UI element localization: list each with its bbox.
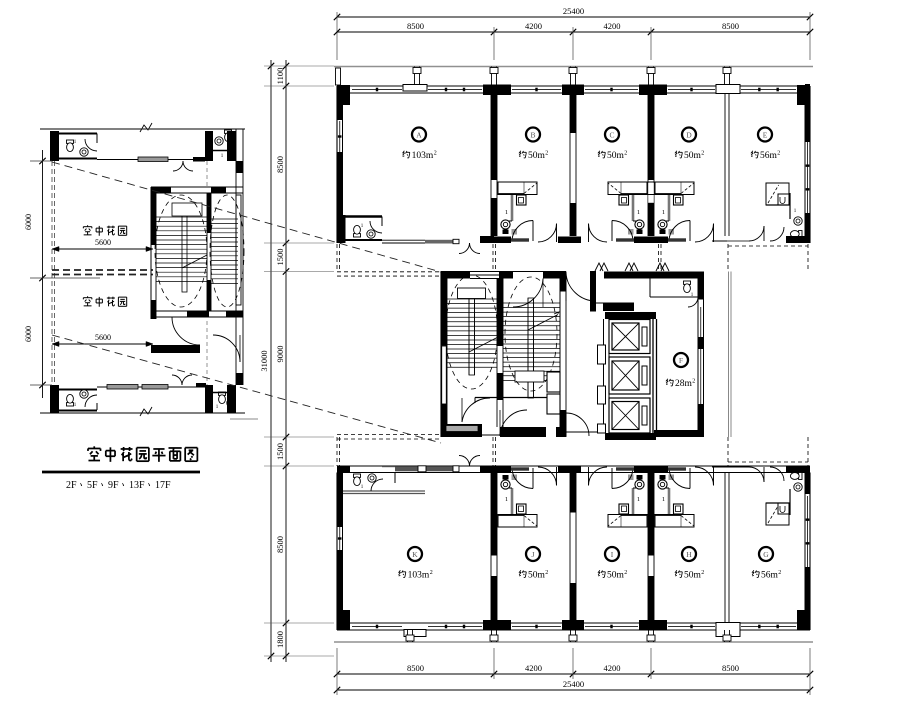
svg-text:2: 2 <box>701 570 704 576</box>
svg-text:50m: 50m <box>684 151 702 161</box>
svg-text:4200: 4200 <box>525 21 542 31</box>
svg-text:5600: 5600 <box>95 238 111 247</box>
svg-text:31000: 31000 <box>259 350 269 371</box>
svg-text:2: 2 <box>624 151 627 157</box>
svg-text:1: 1 <box>637 209 640 216</box>
svg-text:6000: 6000 <box>24 326 33 342</box>
svg-text:8500: 8500 <box>275 156 285 173</box>
svg-text:2: 2 <box>624 570 627 576</box>
svg-text:8500: 8500 <box>275 536 285 553</box>
svg-text:28m: 28m <box>675 379 693 389</box>
svg-text:2: 2 <box>701 151 704 157</box>
svg-text:8500: 8500 <box>722 663 739 673</box>
svg-text:1: 1 <box>505 496 508 503</box>
svg-text:103m: 103m <box>412 151 434 161</box>
svg-text:1500: 1500 <box>275 249 285 266</box>
svg-text:1800: 1800 <box>275 631 285 648</box>
svg-text:B: B <box>530 130 535 139</box>
svg-text:2: 2 <box>545 570 548 576</box>
svg-text:H: H <box>686 550 692 559</box>
svg-text:G: G <box>763 550 769 559</box>
svg-text:C: C <box>609 130 614 139</box>
svg-text:A: A <box>416 130 422 139</box>
svg-text:9F: 9F <box>108 480 119 491</box>
svg-text:4200: 4200 <box>604 21 621 31</box>
svg-text:4200: 4200 <box>604 663 621 673</box>
svg-text:50m: 50m <box>528 151 546 161</box>
svg-text:1: 1 <box>662 496 665 503</box>
svg-text:8500: 8500 <box>407 663 424 673</box>
svg-text:1: 1 <box>662 209 665 216</box>
svg-text:E: E <box>763 130 768 139</box>
svg-text:13F: 13F <box>129 480 145 491</box>
svg-text:2F: 2F <box>66 480 77 491</box>
svg-text:9000: 9000 <box>275 346 285 363</box>
svg-text:4200: 4200 <box>525 663 542 673</box>
svg-text:5F: 5F <box>87 480 98 491</box>
svg-text:D: D <box>686 130 692 139</box>
svg-text:2: 2 <box>545 151 548 157</box>
svg-text:2: 2 <box>692 379 695 385</box>
svg-text:F: F <box>679 356 683 365</box>
svg-text:1100: 1100 <box>275 68 285 85</box>
svg-text:6000: 6000 <box>24 214 33 230</box>
svg-text:J: J <box>532 550 535 559</box>
svg-text:25400: 25400 <box>563 679 584 689</box>
svg-text:2: 2 <box>430 570 433 576</box>
svg-text:1: 1 <box>505 209 508 216</box>
svg-text:8500: 8500 <box>407 21 424 31</box>
svg-text:25400: 25400 <box>563 6 584 16</box>
svg-text:50m: 50m <box>528 571 546 581</box>
svg-text:50m: 50m <box>684 571 702 581</box>
svg-text:56m: 56m <box>761 571 779 581</box>
svg-text:1: 1 <box>637 496 640 503</box>
svg-text:5600: 5600 <box>95 333 111 342</box>
svg-text:50m: 50m <box>607 571 625 581</box>
svg-text:K: K <box>412 550 418 559</box>
svg-text:2: 2 <box>777 151 780 157</box>
svg-text:56m: 56m <box>760 151 778 161</box>
svg-text:50m: 50m <box>607 151 625 161</box>
svg-text:2: 2 <box>434 151 437 157</box>
svg-text:103m: 103m <box>408 571 430 581</box>
svg-text:8500: 8500 <box>722 21 739 31</box>
svg-text:2: 2 <box>778 570 781 576</box>
svg-text:17F: 17F <box>155 480 171 491</box>
svg-text:1500: 1500 <box>275 443 285 460</box>
